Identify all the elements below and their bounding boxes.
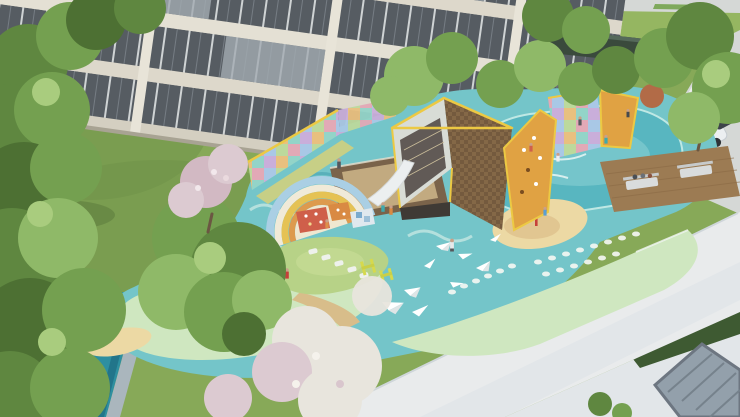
person [529,143,532,152]
person [325,219,328,228]
rendered-scene [0,0,740,417]
scene-canvas [0,0,740,417]
person [543,207,546,216]
person [556,153,559,162]
person [604,135,607,144]
person [450,239,454,252]
person [381,202,384,212]
person [389,205,392,215]
climb-mat-orange [328,202,352,221]
person [337,158,341,168]
person [627,109,630,117]
person [578,116,581,125]
